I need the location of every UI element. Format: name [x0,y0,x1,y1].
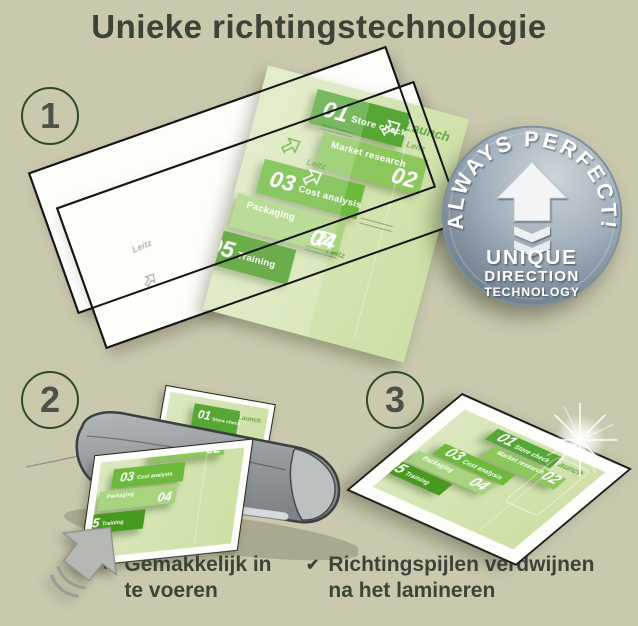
chart-block-number: 03 [267,167,298,196]
brand-watermark: Leitz [405,139,426,154]
chart-block-label: Packaging [106,491,134,500]
sparkle-icon [541,401,619,479]
direction-arrow-icon [137,268,160,291]
chart-block-number: 04 [157,491,173,505]
caption-arrows-disappear-line2: na het lamineren [328,578,594,604]
badge-line3: TECHNOLOGY [484,285,580,299]
feed-direction-arrow-icon [28,513,140,617]
step-1-circle: 1 [21,87,79,145]
fold-crease [193,448,212,542]
chart-block-label: Packaging [245,200,296,224]
pouch-brand-watermark: Leitz [131,238,154,255]
step-3-circle: 3 [366,371,424,429]
chart-block-label: Training [236,251,277,272]
badge-line2: DIRECTION [484,268,579,285]
chart-block-04: Packaging04 [97,484,177,511]
chart-block-label: Market research [158,448,201,452]
doodle-arrow-icon [273,128,308,163]
chart-block-number: 04 [464,476,492,493]
badge-line1: UNIQUE [486,246,578,269]
chart-block-label: Training [402,471,431,486]
chart-block-number: 03 [119,470,135,484]
always-perfect-badge: ALWAYS PERFECT! UNIQUE DIRECTION TECHNOL… [438,121,626,309]
chart-block-label: Cost analysis [137,471,173,481]
caption-arrows-disappear-line1: Richtingspijlen verdwijnen [328,552,594,578]
page-title: Unieke richtingstechnologie [0,8,638,46]
fine-print-lines [359,218,393,232]
infographic-stage: Unieke richtingstechnologie 1 Leitz Leit… [0,0,638,626]
chart-block-number: 02 [206,448,222,457]
chart-block-number: 01 [320,98,351,127]
chart-block-02: Market research02 [149,448,226,463]
step-1-number: 1 [40,98,60,134]
step-3-number: 3 [385,382,405,418]
laminator-end-cap [290,449,335,520]
